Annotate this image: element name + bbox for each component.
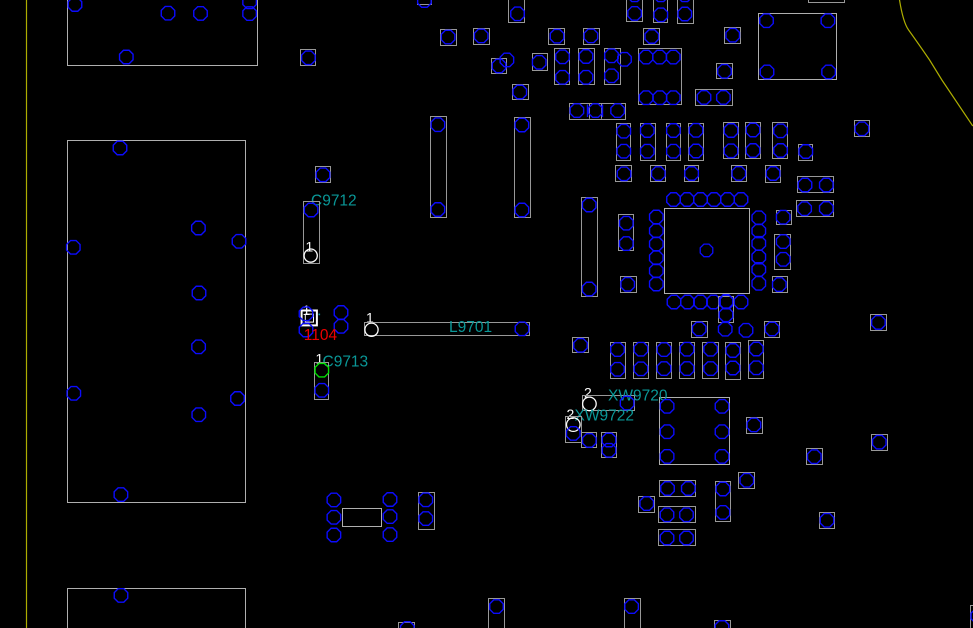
svg-text:XW9722: XW9722	[575, 408, 634, 425]
svg-text:XW9720: XW9720	[608, 388, 668, 405]
svg-text:1104: 1104	[304, 327, 338, 344]
svg-text:C9713: C9713	[323, 353, 369, 370]
svg-text:2: 2	[567, 406, 575, 422]
svg-text:1: 1	[303, 302, 311, 318]
svg-text:1: 1	[306, 239, 314, 255]
svg-text:L9701: L9701	[449, 319, 492, 336]
